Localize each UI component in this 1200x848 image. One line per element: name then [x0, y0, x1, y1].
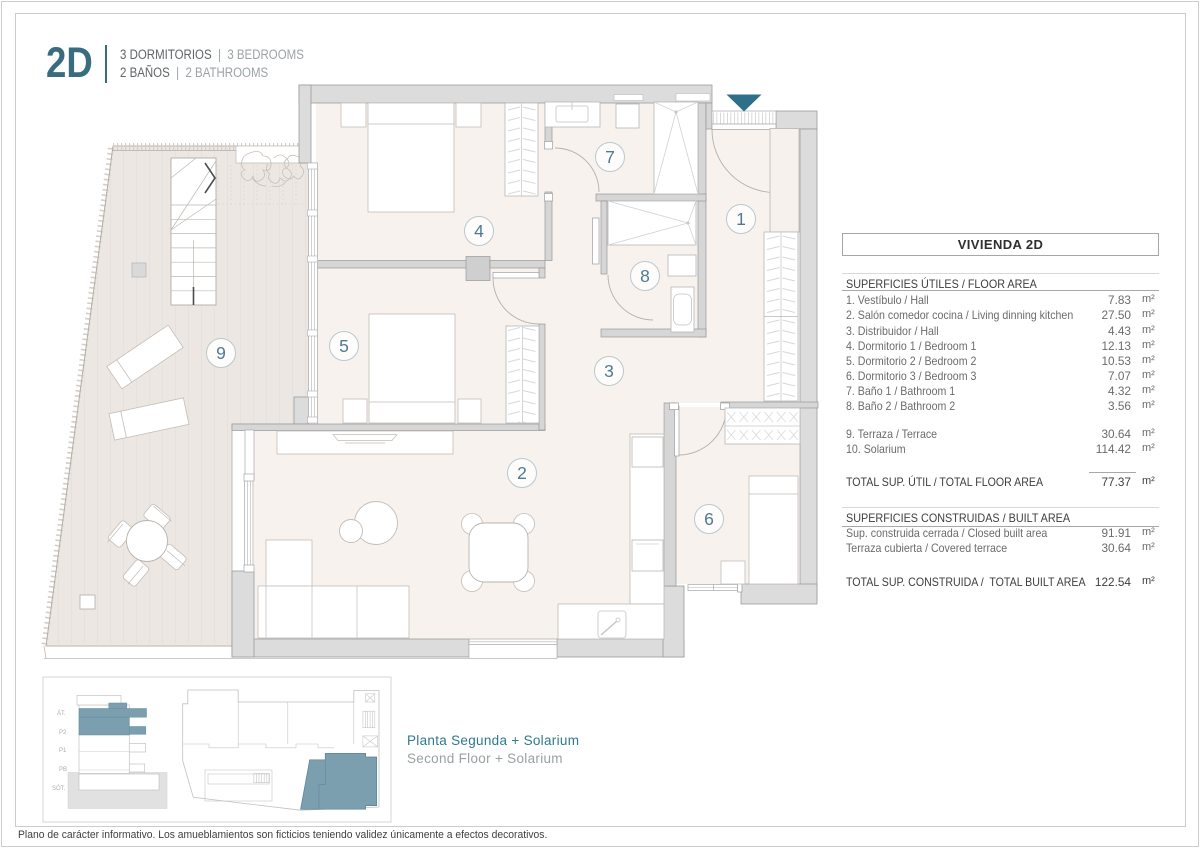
svg-text:5: 5 [339, 336, 349, 356]
svg-text:PB: PB [59, 767, 67, 773]
svg-text:2: 2 [517, 463, 527, 483]
svg-text:ÁT.: ÁT. [57, 710, 66, 717]
svg-text:P2: P2 [59, 730, 67, 736]
svg-text:3: 3 [604, 361, 614, 381]
svg-text:P1: P1 [59, 748, 67, 754]
svg-text:8: 8 [640, 266, 650, 286]
svg-text:SÓT.: SÓT. [52, 785, 66, 792]
svg-text:6: 6 [704, 509, 714, 529]
svg-text:4: 4 [474, 221, 484, 241]
svg-text:9: 9 [216, 343, 226, 363]
svg-text:1: 1 [736, 209, 746, 229]
svg-text:7: 7 [605, 147, 615, 167]
